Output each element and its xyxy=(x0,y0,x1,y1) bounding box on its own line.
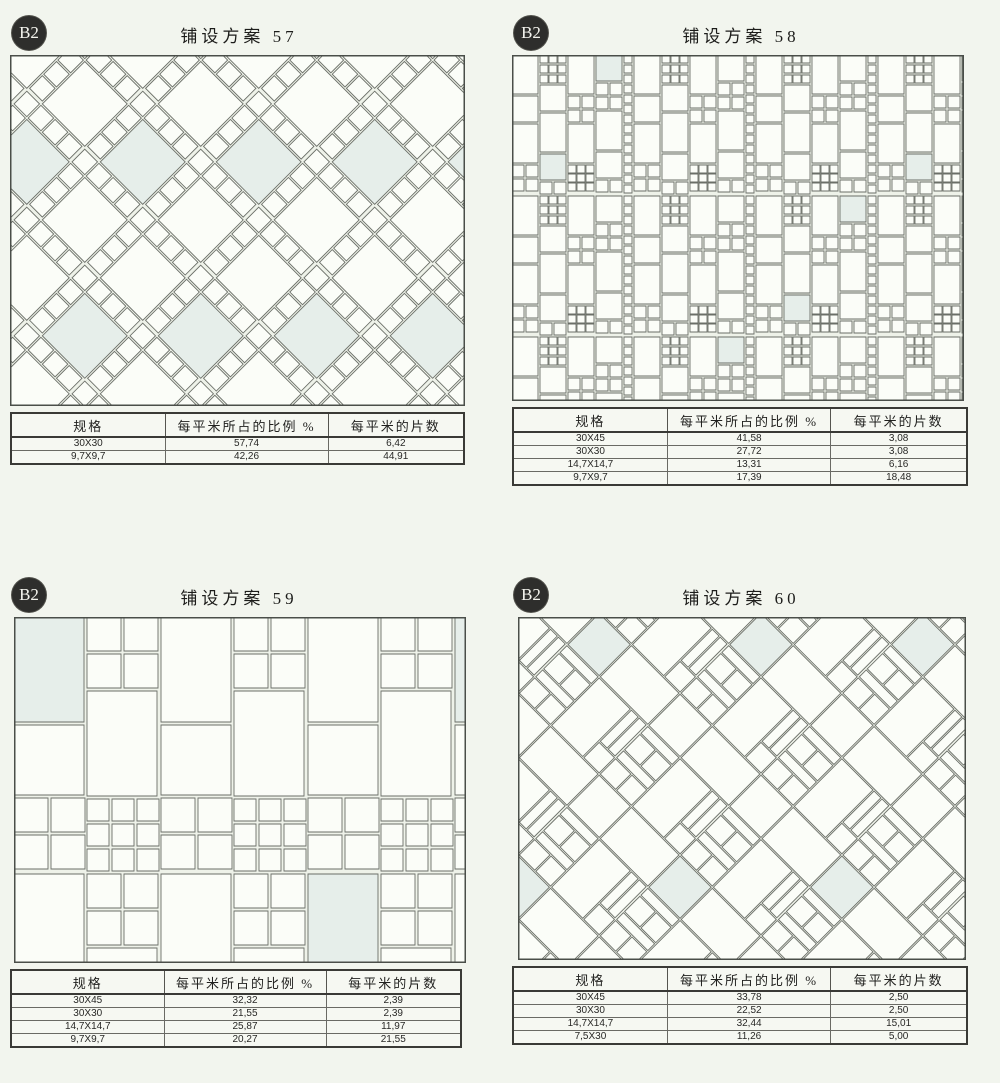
table-row: 30X3027,723,08 xyxy=(513,446,967,459)
table-row: 14,7X14,725,8711,97 xyxy=(11,1021,461,1034)
table-row: 30X3021,552,39 xyxy=(11,1008,461,1021)
panel-header: B2 铺设方案 58 xyxy=(512,14,970,55)
table-cell: 14,7X14,7 xyxy=(11,1021,164,1034)
table-cell: 20,27 xyxy=(164,1034,326,1048)
panel-title: 铺设方案 58 xyxy=(512,14,970,60)
table-cell: 22,52 xyxy=(667,1005,830,1018)
spec-table: 规格 每平米所占的比例 % 每平米的片数 30X4533,782,5030X30… xyxy=(512,966,968,1045)
panel-header: B2 铺设方案 59 xyxy=(10,576,468,617)
panel-scheme-58: B2 铺设方案 58 规格 每平米所占的比例 % 每平米的片数 30X4541,… xyxy=(512,14,970,486)
table-cell: 3,08 xyxy=(831,446,967,459)
table-cell: 13,31 xyxy=(667,459,830,472)
table-cell: 32,32 xyxy=(164,994,326,1008)
col-header-spec: 规格 xyxy=(513,967,667,991)
table-cell: 21,55 xyxy=(326,1034,461,1048)
table-cell: 30X45 xyxy=(513,432,667,446)
table-cell: 33,78 xyxy=(667,991,830,1005)
b2-badge: B2 xyxy=(514,16,548,50)
table-cell: 2,39 xyxy=(326,994,461,1008)
tile-pattern-diagram xyxy=(512,55,964,401)
spec-table: 规格 每平米所占的比例 % 每平米的片数 30X4541,583,0830X30… xyxy=(512,407,968,486)
col-header-spec: 规格 xyxy=(11,970,164,994)
panel-title: 铺设方案 59 xyxy=(10,576,468,622)
table-cell: 25,87 xyxy=(164,1021,326,1034)
table-row: 30X3057,746,42 xyxy=(11,437,464,451)
col-header-pieces: 每平米的片数 xyxy=(831,967,967,991)
panel-scheme-57: B2 铺设方案 57 规格 每平米所占的比例 % 每平米的片数 30X3057,… xyxy=(10,14,468,465)
table-cell: 5,00 xyxy=(831,1031,967,1045)
spec-table: 规格 每平米所占的比例 % 每平米的片数 30X4532,322,3930X30… xyxy=(10,969,462,1048)
table-row: 7,5X3011,265,00 xyxy=(513,1031,967,1045)
col-header-ratio: 每平米所占的比例 % xyxy=(165,413,328,437)
table-cell: 30X30 xyxy=(513,446,667,459)
table-cell: 7,5X30 xyxy=(513,1031,667,1045)
table-row: 9,7X9,720,2721,55 xyxy=(11,1034,461,1048)
catalog-page: { "style": { "page_bg": "#f2f5ee", "grou… xyxy=(0,0,1000,1083)
table-header-row: 规格 每平米所占的比例 % 每平米的片数 xyxy=(513,408,967,432)
panel-scheme-60: B2 铺设方案 60 规格 每平米所占的比例 % 每平米的片数 30X4533,… xyxy=(512,576,970,1045)
panel-scheme-59: B2 铺设方案 59 规格 每平米所占的比例 % 每平米的片数 30X4532,… xyxy=(10,576,468,1048)
tile-pattern-diagram xyxy=(14,617,466,963)
table-header-row: 规格 每平米所占的比例 % 每平米的片数 xyxy=(11,970,461,994)
table-header-row: 规格 每平米所占的比例 % 每平米的片数 xyxy=(11,413,464,437)
table-cell: 2,50 xyxy=(831,1005,967,1018)
table-row: 14,7X14,713,316,16 xyxy=(513,459,967,472)
b2-badge: B2 xyxy=(12,16,46,50)
panel-title: 铺设方案 57 xyxy=(10,14,468,60)
b2-badge: B2 xyxy=(12,578,46,612)
col-header-ratio: 每平米所占的比例 % xyxy=(667,967,830,991)
table-cell: 30X45 xyxy=(11,994,164,1008)
table-cell: 41,58 xyxy=(667,432,830,446)
col-header-ratio: 每平米所占的比例 % xyxy=(164,970,326,994)
table-row: 30X4532,322,39 xyxy=(11,994,461,1008)
table-cell: 3,08 xyxy=(831,432,967,446)
table-cell: 57,74 xyxy=(165,437,328,451)
col-header-spec: 规格 xyxy=(11,413,165,437)
table-cell: 6,16 xyxy=(831,459,967,472)
tile-pattern-diagram xyxy=(10,55,465,406)
table-cell: 18,48 xyxy=(831,472,967,486)
table-cell: 30X30 xyxy=(11,1008,164,1021)
table-cell: 9,7X9,7 xyxy=(11,451,165,465)
table-cell: 9,7X9,7 xyxy=(11,1034,164,1048)
table-header-row: 规格 每平米所占的比例 % 每平米的片数 xyxy=(513,967,967,991)
table-cell: 30X45 xyxy=(513,991,667,1005)
col-header-pieces: 每平米的片数 xyxy=(328,413,464,437)
table-cell: 14,7X14,7 xyxy=(513,1018,667,1031)
table-cell: 14,7X14,7 xyxy=(513,459,667,472)
spec-table: 规格 每平米所占的比例 % 每平米的片数 30X3057,746,429,7X9… xyxy=(10,412,465,465)
table-cell: 42,26 xyxy=(165,451,328,465)
table-row: 9,7X9,742,2644,91 xyxy=(11,451,464,465)
panel-header: B2 铺设方案 60 xyxy=(512,576,970,617)
table-cell: 17,39 xyxy=(667,472,830,486)
table-cell: 44,91 xyxy=(328,451,464,465)
table-row: 30X3022,522,50 xyxy=(513,1005,967,1018)
table-row: 30X4533,782,50 xyxy=(513,991,967,1005)
tile-pattern-diagram xyxy=(518,617,966,960)
table-cell: 2,39 xyxy=(326,1008,461,1021)
col-header-spec: 规格 xyxy=(513,408,667,432)
col-header-ratio: 每平米所占的比例 % xyxy=(667,408,830,432)
table-cell: 32,44 xyxy=(667,1018,830,1031)
table-cell: 27,72 xyxy=(667,446,830,459)
col-header-pieces: 每平米的片数 xyxy=(831,408,967,432)
table-cell: 6,42 xyxy=(328,437,464,451)
table-cell: 2,50 xyxy=(831,991,967,1005)
table-row: 9,7X9,717,3918,48 xyxy=(513,472,967,486)
panel-title: 铺设方案 60 xyxy=(512,576,970,622)
table-cell: 30X30 xyxy=(513,1005,667,1018)
panel-header: B2 铺设方案 57 xyxy=(10,14,468,55)
table-row: 14,7X14,732,4415,01 xyxy=(513,1018,967,1031)
table-cell: 15,01 xyxy=(831,1018,967,1031)
table-cell: 21,55 xyxy=(164,1008,326,1021)
table-cell: 11,26 xyxy=(667,1031,830,1045)
table-cell: 11,97 xyxy=(326,1021,461,1034)
b2-badge: B2 xyxy=(514,578,548,612)
col-header-pieces: 每平米的片数 xyxy=(326,970,461,994)
table-cell: 30X30 xyxy=(11,437,165,451)
table-row: 30X4541,583,08 xyxy=(513,432,967,446)
table-cell: 9,7X9,7 xyxy=(513,472,667,486)
